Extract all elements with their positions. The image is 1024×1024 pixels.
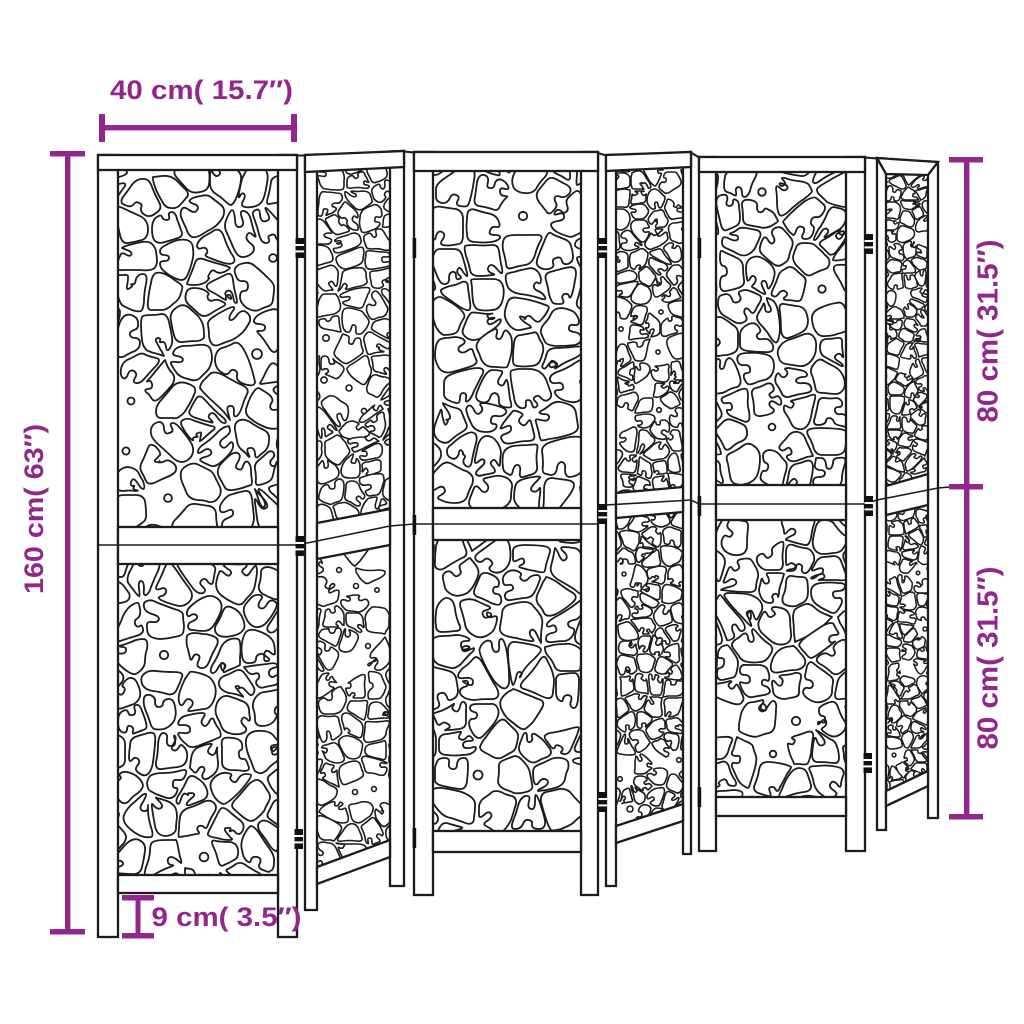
svg-text:9 cm( 3.5″): 9 cm( 3.5″) — [152, 902, 302, 932]
svg-text:40 cm( 15.7″): 40 cm( 15.7″) — [110, 75, 293, 105]
svg-text:160 cm( 63″): 160 cm( 63″) — [19, 424, 49, 594]
svg-text:80 cm( 31.5″): 80 cm( 31.5″) — [973, 240, 1005, 423]
svg-text:80 cm( 31.5″): 80 cm( 31.5″) — [973, 567, 1005, 750]
